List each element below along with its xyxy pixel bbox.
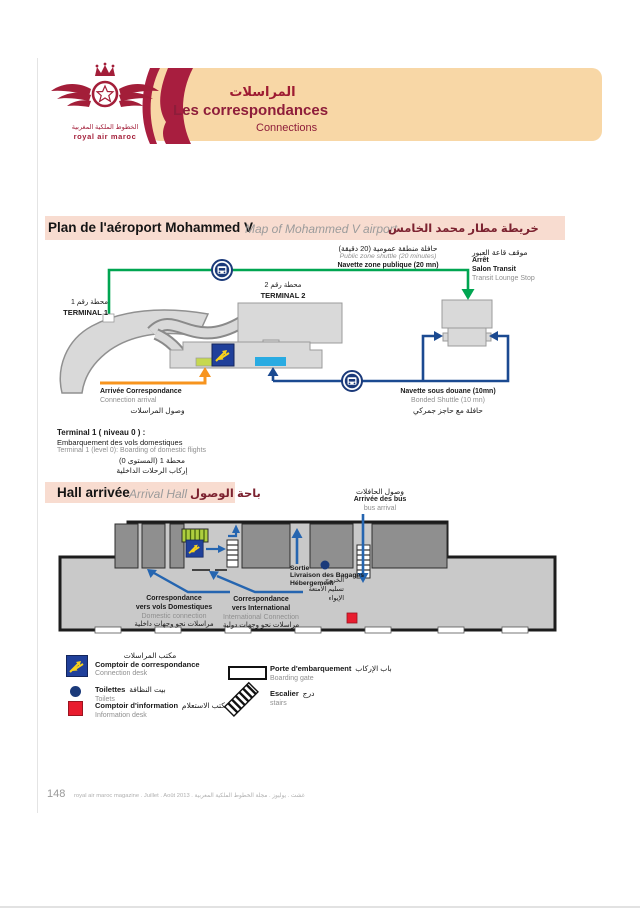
- hall-title-en: Arrival Hall: [129, 487, 187, 502]
- legend-boarding-gate-icon: [228, 666, 267, 680]
- logo-brand-en: royal air maroc: [45, 132, 165, 141]
- connection-desk-icon: [186, 540, 203, 557]
- legend-stairs-icon: [220, 680, 262, 718]
- map-title-en: Map of Mohammed V airport: [245, 222, 397, 237]
- legend-toilets-icon: [70, 686, 81, 697]
- ram-logo: [45, 62, 165, 124]
- legend-stairs: Escalier درج stairs: [270, 689, 314, 709]
- footer-text: royal air maroc magazine . Juillet . Aoû…: [74, 793, 305, 800]
- page-number: 148: [47, 788, 65, 802]
- header-title-en: Connections: [256, 122, 317, 136]
- terminal2-label: محطة رقم 2 TERMINAL 2: [240, 282, 326, 300]
- header-title-ar: المراسلات: [185, 84, 340, 100]
- bonded-shuttle-zone: [255, 357, 286, 366]
- transit-lounge-annex: [448, 328, 486, 346]
- transit-lounge-building: [442, 300, 492, 328]
- international-label: Correspondance vers International Intern…: [215, 596, 307, 631]
- connection-building: [170, 342, 322, 368]
- bus-icon: [342, 371, 362, 391]
- connection-arrival-arrow: [100, 367, 211, 383]
- page-left-rule: [37, 58, 38, 813]
- magazine-page: الخطوط الملكية المغربية royal air maroc …: [0, 0, 640, 908]
- hall-rooms: [115, 524, 447, 568]
- header-title-fr: Les correspondances: [173, 102, 328, 121]
- bus-icon: [212, 260, 232, 280]
- hall-title-ar: باحة الوصول: [190, 487, 261, 501]
- connection-arrival-label: Arrivée Correspondance Connection arriva…: [100, 388, 215, 415]
- terminal1-label: محطة رقم 1 TERMINAL 1: [40, 299, 108, 317]
- terminal1-note: Terminal 1 ( niveau 0 ) : Embarquement d…: [57, 428, 257, 475]
- terminal2-building: [238, 303, 342, 343]
- bus-arrival-label: وصول الحافلات Arrivée des bus bus arriva…: [330, 487, 430, 514]
- hall-title-fr: Hall arrivée: [57, 485, 130, 502]
- connection-desk-icon: [212, 344, 234, 366]
- domestic-label: Correspondance vers vols Domestiques Dom…: [128, 595, 220, 630]
- legend-connection-desk-icon: [66, 655, 88, 677]
- connection-arrival-zone: [196, 358, 214, 366]
- information-desk-icon: [347, 613, 357, 623]
- stairs-icon: [227, 540, 238, 567]
- logo-brand-ar: الخطوط الملكية المغربية: [45, 124, 165, 132]
- legend-connection-desk: مكتب المراسلات Comptoir de correspondanc…: [95, 651, 205, 679]
- bonded-shuttle-label: Navette sous douane (10mn) Bonded Shuttl…: [383, 388, 513, 415]
- public-shuttle-label: حافلة منطقة عمومية (20 دقيقة) Public zon…: [318, 244, 458, 271]
- transit-stop-label: موقف قاعة العبور Arrêt Salon Transit Tra…: [472, 248, 535, 284]
- legend-information: Comptoir d'information مكتب الاستعلام In…: [95, 701, 229, 721]
- legend-information-icon: [68, 701, 83, 716]
- map-title-fr: Plan de l'aéroport Mohammed V: [48, 220, 253, 237]
- map-title-ar: خريطة مطار محمد الخامس: [388, 222, 539, 236]
- legend-boarding-gate: Porte d'embarquement باب الإركاب Boardin…: [270, 664, 392, 684]
